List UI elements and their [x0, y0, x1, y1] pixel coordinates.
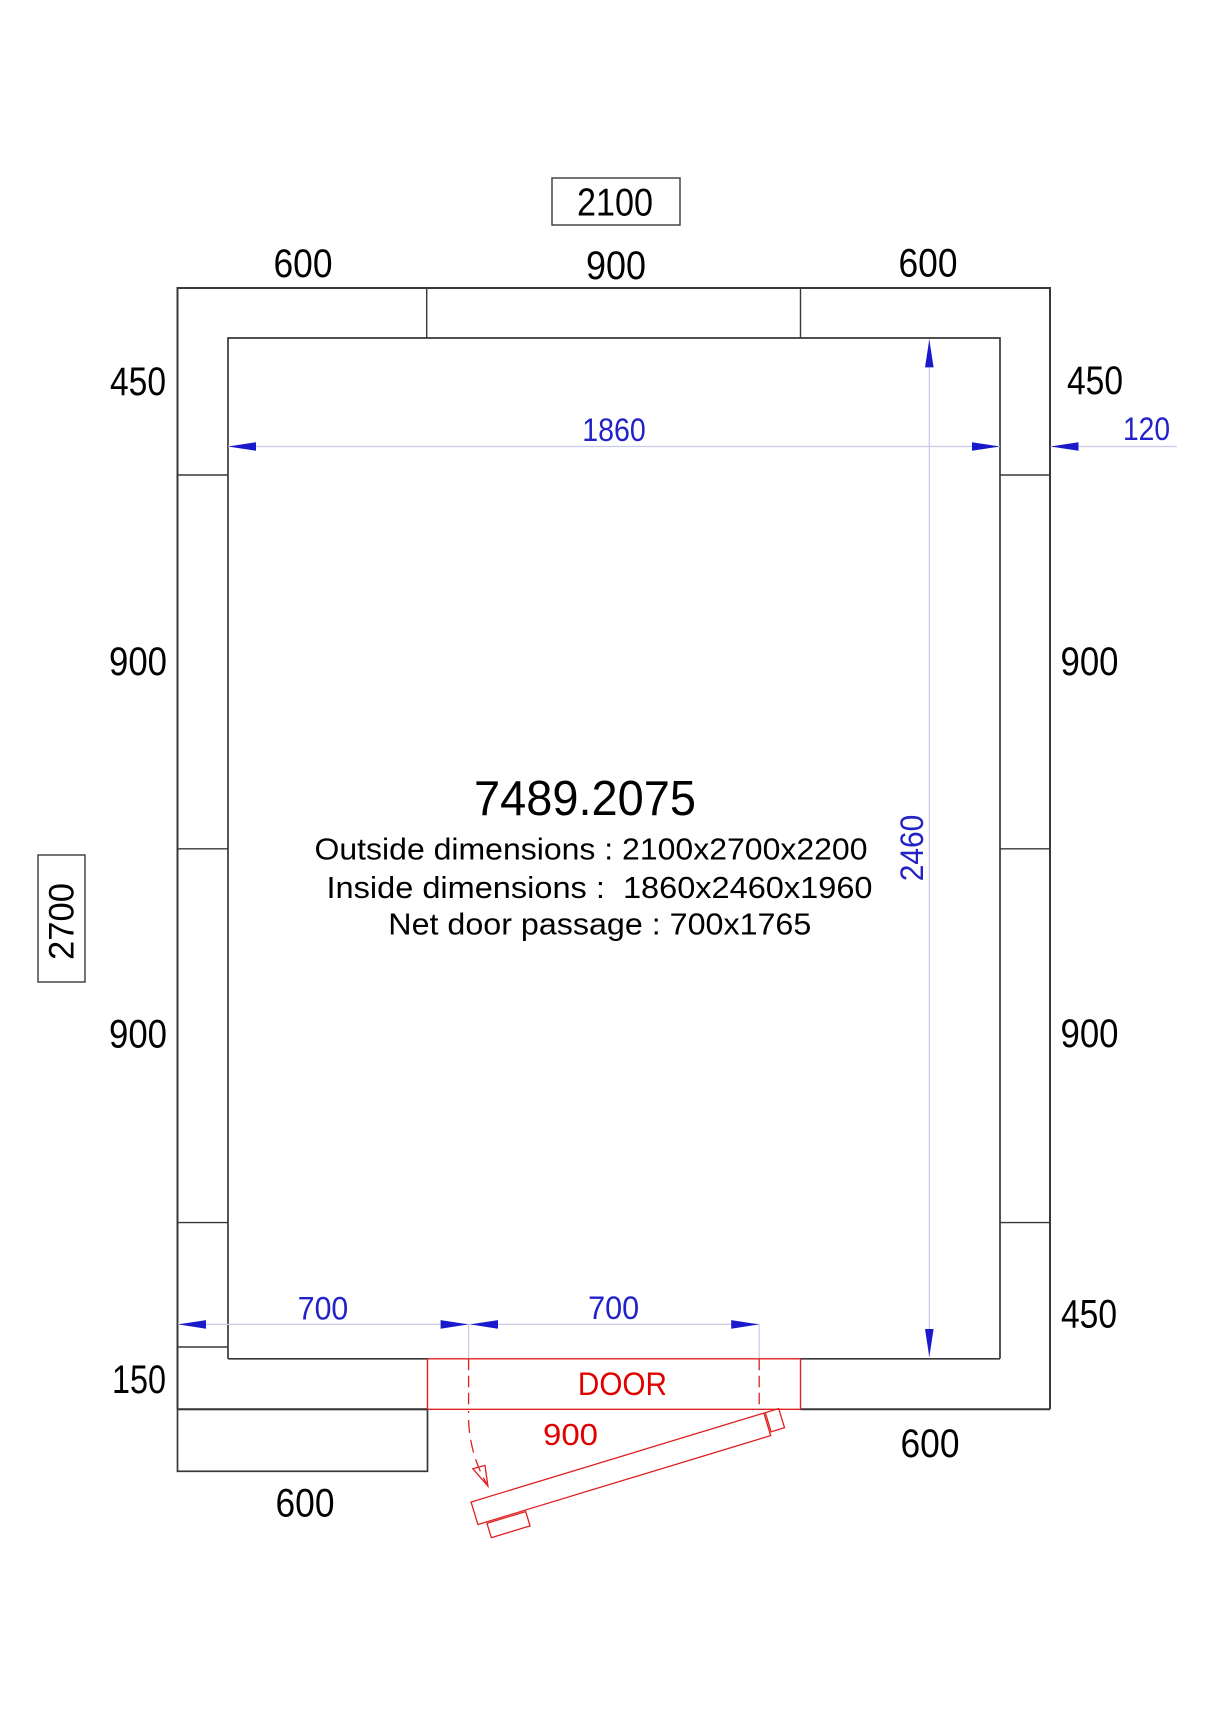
svg-text:150: 150 — [112, 1358, 166, 1402]
svg-text:Net door passage : 700x1765: Net door passage : 700x1765 — [388, 908, 811, 942]
svg-text:450: 450 — [1067, 359, 1123, 403]
svg-text:2700: 2700 — [42, 883, 82, 960]
svg-text:600: 600 — [899, 242, 958, 286]
svg-text:900: 900 — [543, 1417, 598, 1452]
svg-text:Inside dimensions : 1860x2460: Inside dimensions : 1860x2460x1960 — [327, 871, 873, 905]
svg-text:450: 450 — [1061, 1293, 1117, 1337]
svg-text:450: 450 — [110, 360, 166, 404]
svg-text:600: 600 — [274, 242, 333, 286]
svg-text:DOOR: DOOR — [578, 1366, 667, 1402]
svg-text:700: 700 — [588, 1290, 639, 1326]
svg-text:900: 900 — [586, 244, 646, 288]
svg-text:700: 700 — [298, 1291, 349, 1327]
svg-text:900: 900 — [109, 1013, 167, 1057]
svg-text:600: 600 — [901, 1422, 960, 1466]
svg-text:2100: 2100 — [577, 182, 653, 225]
svg-text:Outside dimensions : 2100x2700: Outside dimensions : 2100x2700x2200 — [315, 833, 868, 867]
svg-text:900: 900 — [1061, 640, 1119, 684]
svg-text:2460: 2460 — [894, 815, 930, 882]
svg-text:120: 120 — [1123, 411, 1170, 447]
svg-text:900: 900 — [1061, 1012, 1119, 1056]
svg-text:7489.2075: 7489.2075 — [474, 772, 696, 826]
svg-text:600: 600 — [276, 1482, 335, 1526]
svg-text:900: 900 — [109, 640, 167, 684]
svg-text:1860: 1860 — [582, 412, 646, 448]
